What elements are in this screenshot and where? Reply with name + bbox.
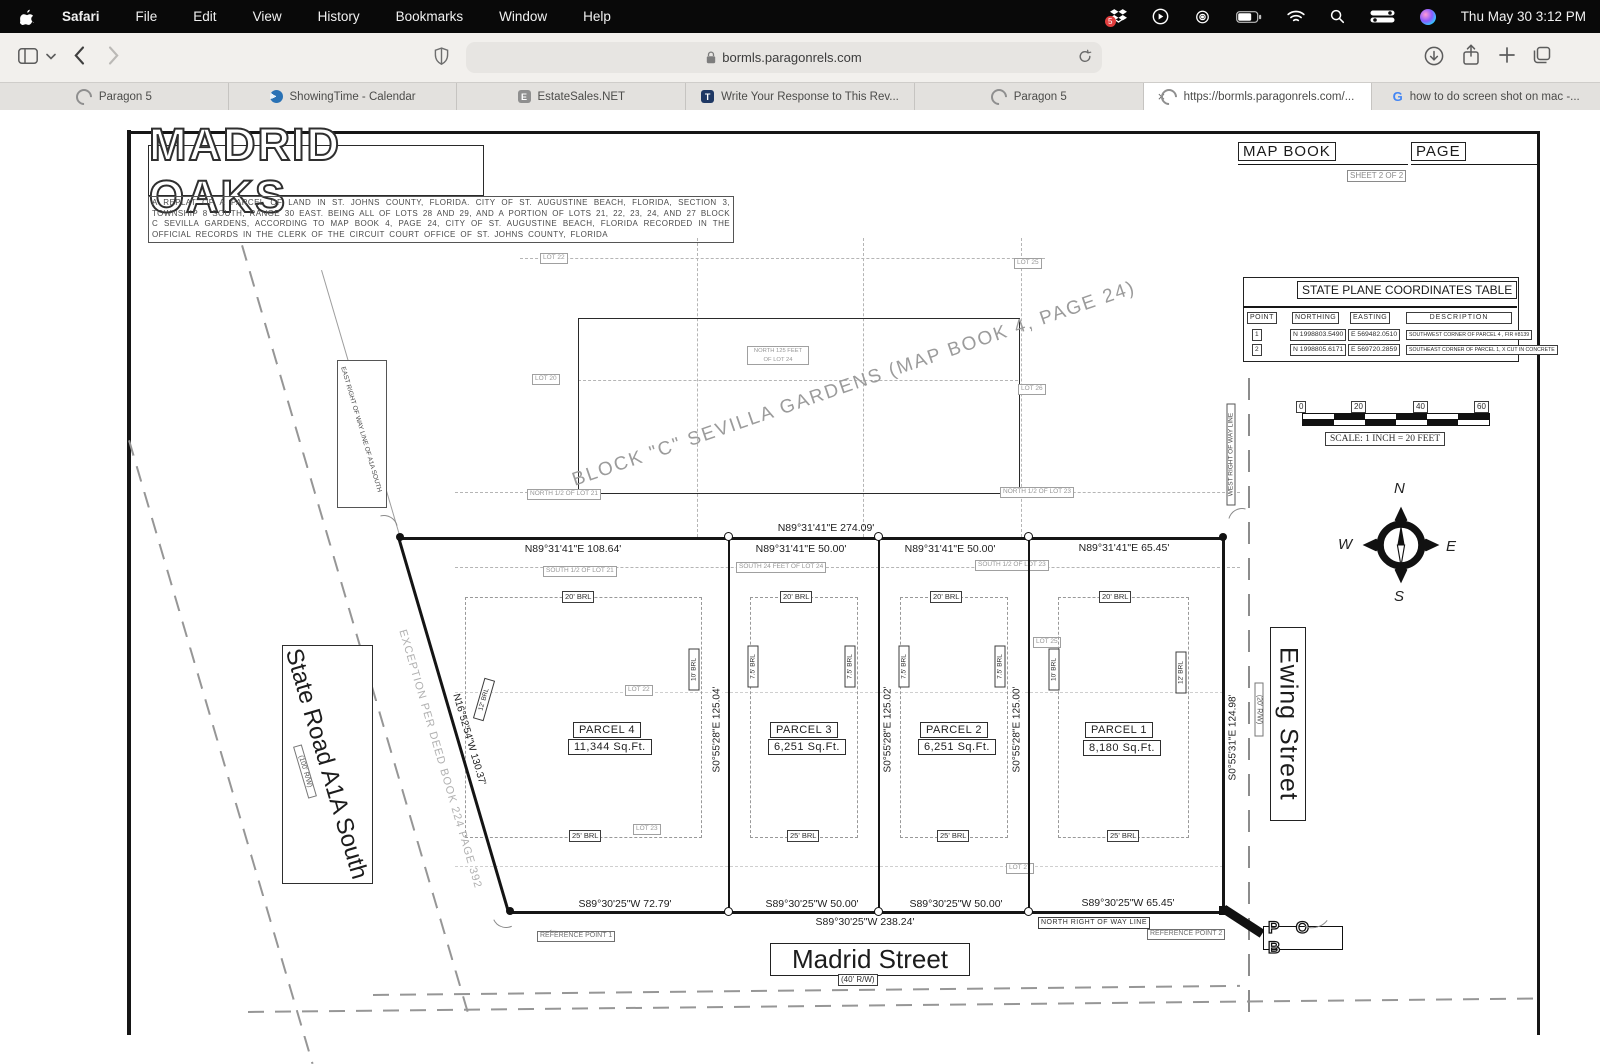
tab-bar: Paragon 5 ShowingTime - Calendar E Estat… bbox=[0, 83, 1600, 111]
coords-row1-northing: N 1998803.5490 bbox=[1290, 329, 1346, 341]
parcel-3-area: 6,251 Sq.Ft. bbox=[768, 739, 846, 755]
menu-item-view[interactable]: View bbox=[253, 9, 282, 24]
reference-point-2-label: REFERENCE POINT 2 bbox=[1147, 929, 1225, 940]
coords-row1-point: 1 bbox=[1252, 329, 1262, 341]
google-favicon: G bbox=[1393, 89, 1403, 104]
tab-bormls-active[interactable]: × https://bormls.paragonrels.com/... bbox=[1144, 83, 1373, 110]
boundary-line-north bbox=[400, 537, 1224, 540]
bearing-bottom-p1: S89°30'25"W 65.45' bbox=[1048, 897, 1208, 909]
coords-row1-easting: E 569482.0510 bbox=[1348, 329, 1400, 341]
boundary-line-south bbox=[510, 911, 1225, 914]
parcel-4-area: 11,344 Sq.Ft. bbox=[568, 739, 652, 755]
scale-tick-40: 40 bbox=[1413, 401, 1428, 413]
siri-icon[interactable] bbox=[1420, 9, 1436, 25]
control-center-icon[interactable] bbox=[1370, 10, 1395, 23]
forward-button[interactable] bbox=[108, 46, 119, 65]
madrid-street-label: Madrid Street bbox=[770, 943, 970, 976]
tab-label: EstateSales.NET bbox=[538, 91, 626, 103]
map-book-label: MAP BOOK bbox=[1238, 142, 1336, 161]
spotlight-search-icon[interactable] bbox=[1330, 9, 1345, 24]
estatesales-favicon: E bbox=[518, 90, 531, 103]
brl-label: 10' BRL bbox=[689, 649, 700, 691]
lot-label: LOT 25 bbox=[1033, 637, 1061, 648]
menu-bar-clock[interactable]: Thu May 30 3:12 PM bbox=[1461, 9, 1586, 24]
building-envelope-p2 bbox=[900, 597, 1008, 838]
lot-label: LOT 26 bbox=[1018, 384, 1046, 395]
dropbox-badge: 5 bbox=[1105, 16, 1116, 27]
share-button[interactable] bbox=[1462, 44, 1480, 66]
brl-label: 20' BRL bbox=[780, 591, 812, 603]
boundary-line-east bbox=[1222, 537, 1225, 913]
plat-description: A REPLAT OF A PARCEL OF LAND IN ST. JOHN… bbox=[148, 196, 734, 243]
tab-label: Paragon 5 bbox=[1014, 91, 1067, 103]
coords-row1-description: SOUTHWEST CORNER OF PARCEL 4 , FIR #8139 bbox=[1406, 330, 1532, 340]
coords-table-title: STATE PLANE COORDINATES TABLE bbox=[1297, 281, 1517, 299]
parcel-1-name: PARCEL 1 bbox=[1085, 722, 1153, 738]
scale-tick-60: 60 bbox=[1474, 401, 1489, 413]
scale-tick-0: 0 bbox=[1296, 401, 1306, 413]
bearing-bottom-p2: S89°30'25"W 50.00' bbox=[876, 898, 1036, 910]
bearing-top-total: N89°31'41"E 274.09' bbox=[726, 522, 926, 534]
monument-dot bbox=[396, 533, 404, 541]
tab-paragon-1[interactable]: Paragon 5 bbox=[0, 83, 229, 110]
tab-label: Write Your Response to This Rev... bbox=[721, 91, 899, 103]
new-tab-button[interactable] bbox=[1498, 46, 1516, 64]
monument-circle bbox=[1024, 532, 1033, 541]
menu-bar-left: Safari File Edit View History Bookmarks … bbox=[0, 9, 647, 25]
back-button[interactable] bbox=[74, 46, 85, 65]
sheet-frame-left bbox=[127, 130, 131, 1035]
coords-header-easting: EASTING bbox=[1350, 312, 1390, 324]
menu-item-history[interactable]: History bbox=[318, 9, 360, 24]
leader-arc bbox=[1223, 503, 1261, 541]
parcel-2-area: 6,251 Sq.Ft. bbox=[918, 739, 996, 755]
tab-write-response[interactable]: T Write Your Response to This Rev... bbox=[686, 83, 915, 110]
apple-menu-icon[interactable] bbox=[20, 9, 34, 25]
parcel-divider-3-2 bbox=[878, 537, 880, 913]
ewing-street-label: Ewing Street bbox=[1270, 627, 1306, 821]
compass-rose bbox=[1361, 505, 1441, 590]
tab-estatesales[interactable]: E EstateSales.NET bbox=[457, 83, 686, 110]
sidebar-chevron-icon[interactable] bbox=[46, 53, 56, 60]
construction-line bbox=[455, 866, 1223, 867]
showingtime-favicon bbox=[270, 90, 283, 103]
madrid-rw-label: (40' R/W) bbox=[838, 974, 878, 986]
bearing-divider-3-2: S0°55'28"E 125.02' bbox=[883, 670, 894, 790]
monument-dot bbox=[1219, 533, 1227, 541]
lot-label: NORTH 1/2 OF LOT 21 bbox=[527, 489, 601, 500]
tab-label: https://bormls.paragonrels.com/... bbox=[1184, 91, 1355, 103]
downloads-button[interactable] bbox=[1424, 46, 1444, 66]
tab-overview-button[interactable] bbox=[1532, 45, 1552, 65]
construction-line bbox=[520, 258, 1045, 259]
menu-item-edit[interactable]: Edit bbox=[193, 9, 216, 24]
parcel-2-name: PARCEL 2 bbox=[920, 722, 988, 738]
brl-label: 20' BRL bbox=[562, 591, 594, 603]
parcel-divider-4-3 bbox=[728, 537, 730, 913]
bearing-divider-4-3: S0°55'28"E 125.04' bbox=[712, 670, 723, 790]
bearing-divider-2-1: S0°55'28"E 125.00' bbox=[1012, 670, 1023, 790]
madrid-road-line bbox=[373, 985, 1240, 996]
menu-item-window[interactable]: Window bbox=[499, 9, 547, 24]
tab-label: ShowingTime - Calendar bbox=[290, 91, 416, 103]
tab-label: Paragon 5 bbox=[99, 91, 152, 103]
brl-label: 25' BRL bbox=[1107, 830, 1139, 842]
airplay-icon[interactable] bbox=[1194, 9, 1211, 25]
leader-arrow: ← bbox=[547, 922, 559, 936]
bearing-top-p3: N89°31'41"E 50.00' bbox=[721, 543, 881, 555]
brl-label: 12' BRL bbox=[1176, 652, 1187, 694]
parcel-3-name: PARCEL 3 bbox=[770, 722, 838, 738]
north-row-label: NORTH RIGHT OF WAY LINE bbox=[1038, 917, 1150, 929]
menu-item-help[interactable]: Help bbox=[583, 9, 611, 24]
sheet-number-label: SHEET 2 OF 2 bbox=[1347, 170, 1406, 182]
url-field[interactable]: bormls.paragonrels.com bbox=[466, 42, 1102, 73]
bearing-top-p2: N89°31'41"E 50.00' bbox=[870, 543, 1030, 555]
brl-label: 25' BRL bbox=[569, 830, 601, 842]
compass-west-label: W bbox=[1338, 536, 1352, 553]
dropbox-icon[interactable]: 5 bbox=[1110, 9, 1127, 24]
brl-label: 25' BRL bbox=[937, 830, 969, 842]
bearing-bottom-p4: S89°30'25"W 72.79' bbox=[545, 898, 705, 910]
brl-label: 25' BRL bbox=[787, 830, 819, 842]
compass-east-label: E bbox=[1446, 538, 1456, 555]
compass-south-label: S bbox=[1394, 588, 1404, 605]
bearing-top-p4: N89°31'41"E 108.64' bbox=[493, 543, 653, 555]
paragon-favicon bbox=[72, 85, 95, 108]
building-envelope-p4 bbox=[465, 597, 702, 838]
menu-bar: Safari File Edit View History Bookmarks … bbox=[0, 0, 1600, 33]
tab-google-search[interactable]: G how to do screen shot on mac -... bbox=[1372, 83, 1600, 110]
coords-header-point: POINT bbox=[1247, 312, 1277, 324]
screen: Safari File Edit View History Bookmarks … bbox=[0, 0, 1600, 1035]
coords-row2-northing: N 1998805.6171 bbox=[1290, 344, 1346, 356]
plat-title: MADRID OAKS bbox=[148, 145, 484, 196]
sidebar-toggle-button[interactable] bbox=[18, 48, 38, 64]
paragon-favicon bbox=[987, 85, 1010, 108]
west-row-label: WEST RIGHT OF WAY LINE bbox=[1227, 404, 1236, 506]
coords-row2-point: 2 bbox=[1252, 344, 1262, 356]
scale-label: SCALE: 1 INCH = 20 FEET bbox=[1325, 432, 1445, 446]
lot-label: SOUTH 1/2 OF LOT 23 bbox=[975, 560, 1049, 571]
lot-label: SOUTH 1/2 OF LOT 21 bbox=[543, 566, 617, 577]
lot-label: LOT 22 bbox=[540, 253, 568, 264]
privacy-shield-icon[interactable] bbox=[434, 47, 449, 66]
coords-row2-description: SOUTHEAST CORNER OF PARCEL 1, X CUT IN C… bbox=[1406, 345, 1558, 355]
tab-label: how to do screen shot on mac -... bbox=[1410, 91, 1580, 103]
ewing-rw-label: (20' R/W) bbox=[1255, 683, 1264, 737]
bearing-bottom-total: S89°30'25"W 238.24' bbox=[775, 916, 955, 928]
menu-item-bookmarks[interactable]: Bookmarks bbox=[396, 9, 464, 24]
browser-toolbar: bormls.paragonrels.com bbox=[0, 33, 1600, 83]
scale-bar bbox=[1302, 413, 1490, 426]
page-line bbox=[1411, 164, 1537, 165]
lock-icon bbox=[706, 51, 716, 64]
madrid-road-line bbox=[248, 997, 1540, 1012]
wifi-icon[interactable] bbox=[1287, 10, 1305, 23]
map-book-line bbox=[1238, 164, 1408, 165]
url-text: bormls.paragonrels.com bbox=[722, 50, 861, 65]
page-label: PAGE bbox=[1411, 142, 1466, 161]
battery-icon[interactable] bbox=[1236, 11, 1262, 23]
plat-document: MADRID OAKS A REPLAT OF A PARCEL OF LAND… bbox=[0, 110, 1600, 1035]
bearing-east-line: S0°55'31"E 124.98' bbox=[1228, 678, 1239, 798]
bearing-top-p1: N89°31'41"E 65.45' bbox=[1044, 542, 1204, 554]
brl-label: 10' BRL bbox=[1049, 649, 1060, 691]
lot-label: LOT 20 bbox=[532, 374, 560, 385]
lot-label: NORTH 125 FEET OF LOT 24 bbox=[747, 346, 809, 365]
coords-table-rule bbox=[1243, 306, 1517, 308]
sheet-frame-right bbox=[1537, 131, 1540, 1035]
brl-label: 7.5' BRL bbox=[995, 646, 1006, 688]
pob-arrow bbox=[1221, 905, 1264, 938]
play-status-icon[interactable] bbox=[1152, 8, 1169, 25]
lot-label: SOUTH 24 FEET OF LOT 24 bbox=[736, 562, 826, 573]
parcel-4-name: PARCEL 4 bbox=[573, 722, 641, 738]
parcel-1-area: 8,180 Sq.Ft. bbox=[1083, 740, 1161, 756]
coords-row2-easting: E 569720.2859 bbox=[1348, 344, 1400, 356]
coords-header-northing: NORTHING bbox=[1292, 312, 1339, 324]
brl-label: 20' BRL bbox=[930, 591, 962, 603]
brl-label: 7.5' BRL bbox=[748, 646, 759, 688]
lot-label: NORTH 1/2 OF LOT 23 bbox=[1000, 487, 1074, 498]
lot-label: LOT 25 bbox=[1014, 258, 1042, 269]
leader-arc bbox=[365, 510, 403, 548]
scale-tick-20: 20 bbox=[1351, 401, 1366, 413]
compass-north-label: N bbox=[1394, 480, 1405, 497]
app-menu-safari[interactable]: Safari bbox=[62, 9, 100, 24]
building-envelope-p1 bbox=[1058, 597, 1189, 838]
brl-label: 20' BRL bbox=[1099, 591, 1131, 603]
parcel-divider-2-1 bbox=[1028, 537, 1030, 913]
menu-bar-status: 5 Thu May 30 3:12 PM bbox=[1110, 8, 1600, 25]
menu-item-file[interactable]: File bbox=[136, 9, 158, 24]
brl-label: 7.5' BRL bbox=[899, 646, 910, 688]
leader-arc bbox=[488, 896, 524, 932]
coords-header-description: DESCRIPTION bbox=[1406, 312, 1512, 324]
tab-showingtime[interactable]: ShowingTime - Calendar bbox=[229, 83, 458, 110]
tab-paragon-2[interactable]: Paragon 5 bbox=[915, 83, 1144, 110]
refresh-button[interactable] bbox=[1078, 49, 1092, 67]
pob-label: P O B bbox=[1263, 926, 1343, 950]
review-favicon: T bbox=[701, 90, 714, 103]
brl-label: 7.5' BRL bbox=[845, 646, 856, 688]
building-envelope-p3 bbox=[750, 597, 858, 838]
bearing-bottom-p3: S89°30'25"W 50.00' bbox=[732, 898, 892, 910]
